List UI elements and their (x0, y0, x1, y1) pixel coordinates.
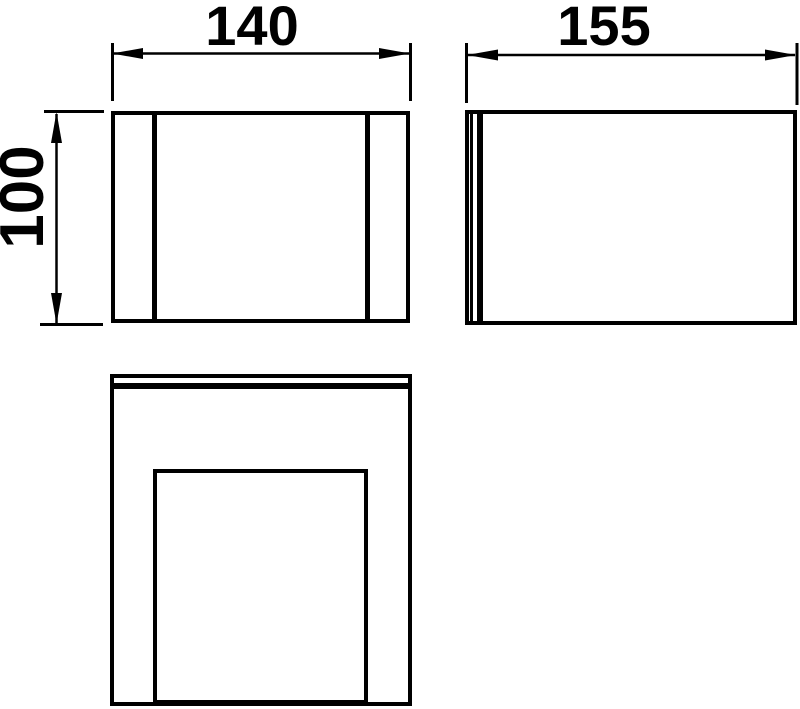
side-view-wall-plate-thin-line (470, 110, 473, 325)
dim-155-arrow-left-icon (467, 50, 498, 61)
dim-140-arrow-right-icon (379, 48, 410, 59)
plan-view-wall-plate-band (113, 383, 409, 389)
dim-155-arrow-right-icon (765, 50, 796, 61)
dim-100-arrow-down-icon (51, 293, 62, 324)
side-view-outline (465, 110, 797, 325)
side-view-wall-plate-thick-line (477, 110, 483, 325)
dimension-label-depth: 155 (554, 0, 654, 54)
dimension-label-width: 140 (202, 0, 302, 54)
dim-100-arrow-up-icon (51, 112, 62, 143)
front-view-left-band-line (152, 111, 157, 323)
dimension-label-height: 100 (0, 145, 48, 249)
plan-view-inner-housing-outline (153, 469, 368, 704)
dim-140-arrow-left-icon (112, 48, 143, 59)
front-view-right-band-line (365, 111, 370, 323)
technical-drawing-canvas: 140 155 100 (0, 0, 800, 709)
